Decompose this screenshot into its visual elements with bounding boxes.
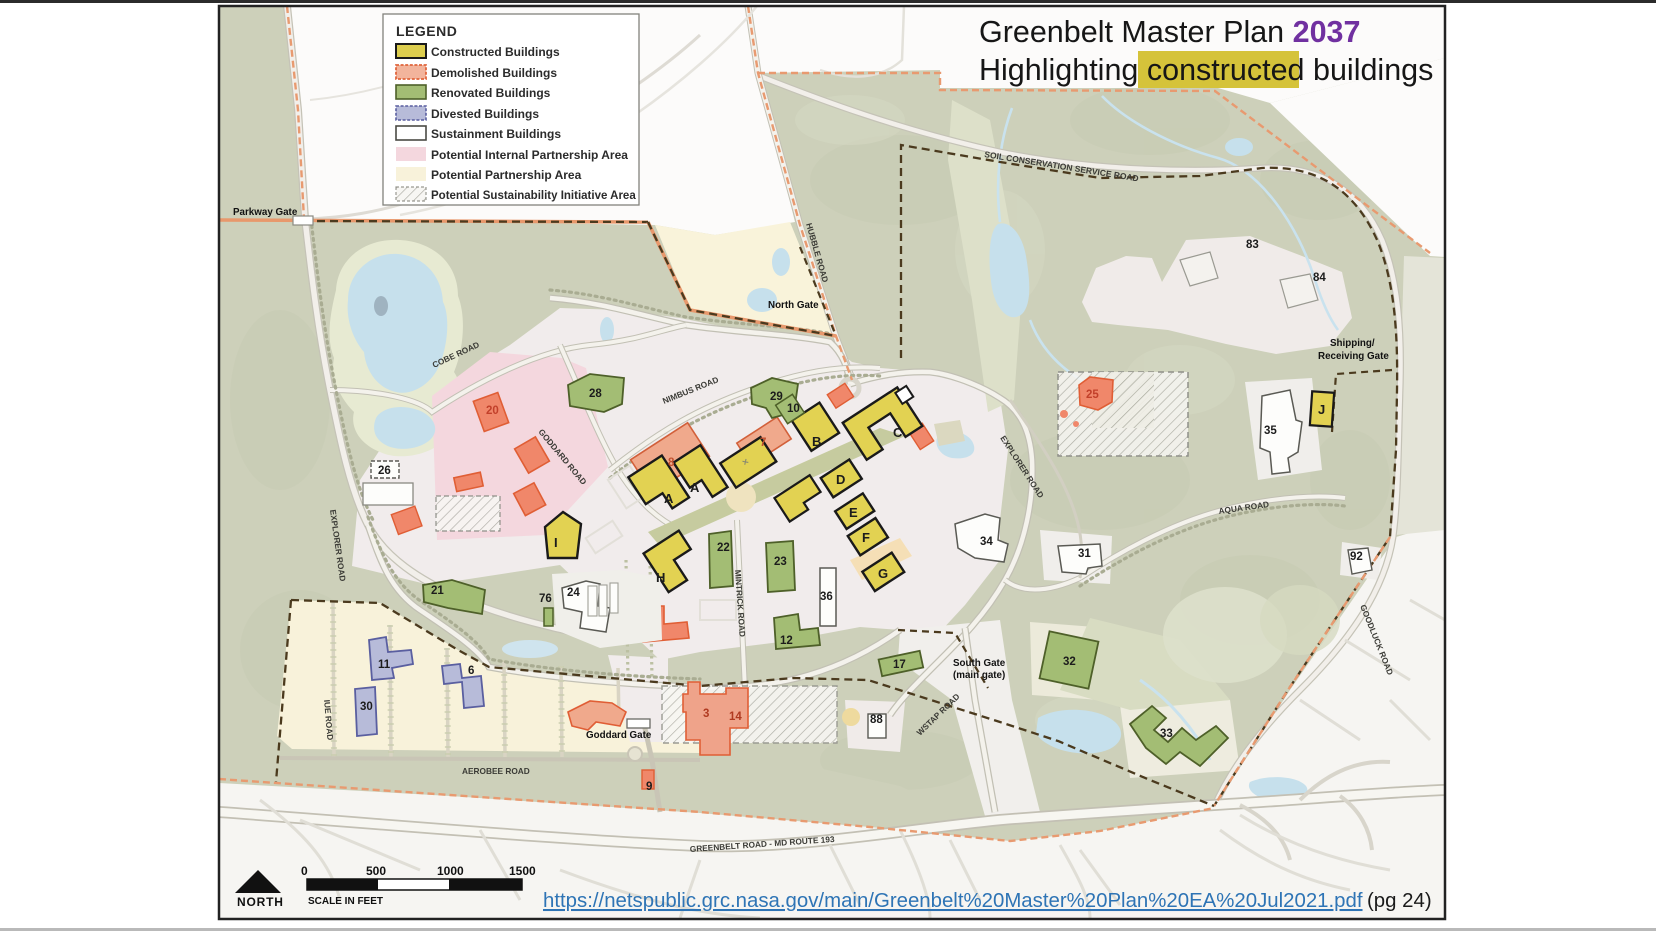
svg-text:Sustainment Buildings: Sustainment Buildings	[431, 127, 561, 141]
svg-text:Constructed Buildings: Constructed Buildings	[431, 45, 560, 59]
svg-text:32: 32	[1063, 656, 1076, 668]
svg-text:SCALE IN FEET: SCALE IN FEET	[308, 896, 383, 907]
svg-text:F: F	[862, 530, 870, 545]
svg-text:Demolished Buildings: Demolished Buildings	[431, 66, 557, 80]
svg-text:30: 30	[360, 701, 373, 713]
svg-text:A: A	[664, 491, 674, 506]
svg-text:7: 7	[760, 437, 766, 449]
svg-text:AEROBEE ROAD: AEROBEE ROAD	[462, 766, 530, 776]
svg-text:1500: 1500	[509, 864, 536, 878]
svg-text:23: 23	[774, 556, 787, 568]
svg-text:LEGEND: LEGEND	[396, 23, 457, 39]
svg-text:NORTH: NORTH	[237, 895, 284, 909]
svg-text:500: 500	[366, 864, 386, 878]
svg-text:1000: 1000	[437, 864, 464, 878]
svg-text:84: 84	[1313, 272, 1326, 284]
svg-text:Renovated Buildings: Renovated Buildings	[431, 86, 551, 100]
svg-text:20: 20	[486, 405, 499, 417]
svg-text:Goddard Gate: Goddard Gate	[586, 730, 652, 741]
svg-text:H: H	[656, 570, 665, 585]
svg-text:24: 24	[567, 587, 580, 599]
svg-text:Potential Sustainability Initi: Potential Sustainability Initiative Area	[431, 190, 636, 202]
svg-text:Highlighting constructed build: Highlighting constructed buildings	[979, 53, 1433, 87]
svg-text:83: 83	[1246, 239, 1259, 251]
svg-text:D: D	[836, 472, 845, 487]
svg-text:Potential Internal Partnership: Potential Internal Partnership Area	[431, 148, 628, 162]
svg-text:Receiving Gate: Receiving Gate	[1318, 351, 1389, 362]
svg-text:Shipping/: Shipping/	[1330, 338, 1375, 349]
svg-text:12: 12	[780, 635, 793, 647]
svg-text:Greenbelt Master Plan 2037: Greenbelt Master Plan 2037	[979, 15, 1360, 49]
svg-text:28: 28	[589, 388, 602, 400]
svg-text:Divested Buildings: Divested Buildings	[431, 107, 539, 121]
svg-text:92: 92	[1350, 551, 1363, 563]
svg-text:31: 31	[1078, 548, 1091, 560]
svg-text:J: J	[1318, 402, 1325, 417]
svg-text:(pg 24): (pg 24)	[1367, 890, 1432, 912]
svg-text:Potential Partnership Area: Potential Partnership Area	[431, 168, 582, 182]
svg-text:South Gate: South Gate	[953, 658, 1006, 669]
svg-text:North Gate: North Gate	[768, 300, 819, 311]
svg-text:14: 14	[729, 711, 742, 723]
svg-text:A: A	[690, 480, 700, 495]
svg-text:34: 34	[980, 536, 993, 548]
svg-text:G: G	[878, 566, 888, 581]
svg-text:88: 88	[870, 714, 883, 726]
svg-text:26: 26	[378, 465, 391, 477]
svg-text:0: 0	[301, 864, 308, 878]
svg-text:21: 21	[431, 585, 444, 597]
svg-text:Parkway Gate: Parkway Gate	[233, 207, 298, 218]
svg-text:8: 8	[668, 457, 675, 469]
svg-text:9: 9	[646, 781, 652, 793]
svg-text:E: E	[849, 505, 858, 520]
svg-text:35: 35	[1264, 425, 1277, 437]
svg-text:C: C	[893, 425, 903, 440]
svg-text:B: B	[812, 434, 821, 449]
svg-text:3: 3	[703, 708, 709, 720]
svg-text:6: 6	[468, 665, 474, 677]
svg-text:11: 11	[378, 659, 391, 671]
svg-text:10: 10	[787, 403, 800, 415]
svg-text:17: 17	[893, 659, 906, 671]
svg-text:https://netspublic.grc.nasa.go: https://netspublic.grc.nasa.gov/main/Gre…	[543, 890, 1363, 912]
svg-text:76: 76	[539, 593, 552, 605]
svg-text:29: 29	[770, 391, 783, 403]
svg-text:36: 36	[820, 591, 833, 603]
svg-text:I: I	[554, 535, 558, 550]
svg-text:(main gate): (main gate)	[953, 670, 1005, 681]
svg-text:25: 25	[1086, 389, 1099, 401]
svg-text:33: 33	[1160, 728, 1173, 740]
svg-text:22: 22	[717, 542, 730, 554]
